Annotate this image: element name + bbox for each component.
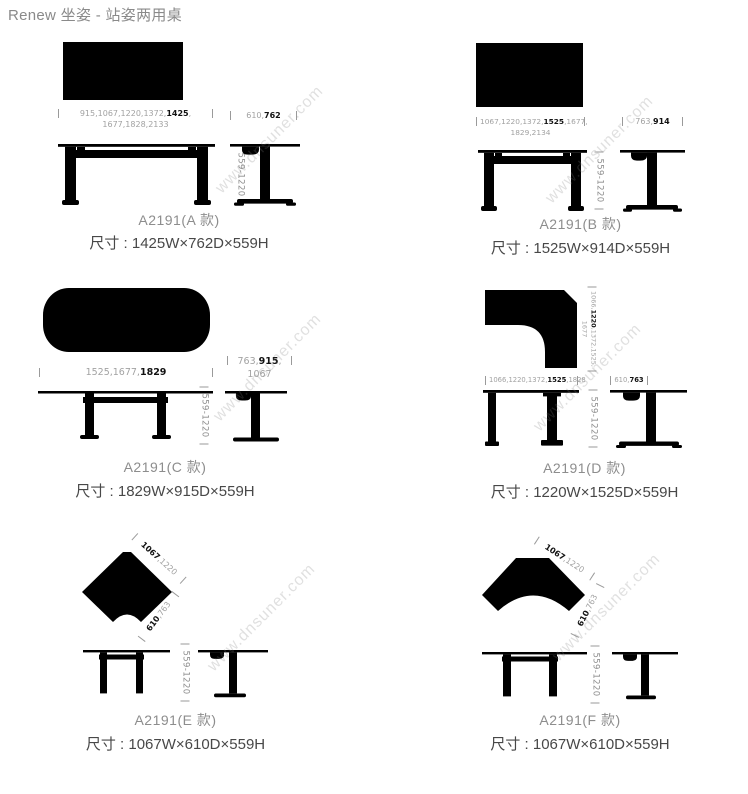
dim-tick: [181, 701, 190, 702]
width-dimension-line: 1066,1220,1372,1525,1828: [485, 375, 578, 386]
dim-pre: 610,: [614, 376, 629, 384]
dim-line2: 1677,1828,2133: [62, 119, 209, 130]
product-panel-f: 1067,1220 610,763 559-1220 A2191(F 款) 尺寸…: [420, 533, 748, 773]
dim-tick: [39, 368, 40, 377]
model-label: A2191(D 款): [482, 458, 687, 478]
dim-tick: [227, 356, 228, 365]
page-title: Renew 坐姿 - 站姿两用桌: [8, 4, 182, 25]
dimension-summary: 尺寸 : 1425W×762D×559H: [58, 232, 300, 253]
model-label: A2191(C 款): [38, 457, 292, 477]
dim-line1: 1067,1220,1372,1525,1677,: [480, 116, 581, 127]
height-range-text: 559-1220: [590, 650, 601, 700]
height-range-text: 559-1220: [199, 391, 210, 441]
dim-tick: [591, 703, 600, 704]
model-label: A2191(A 款): [58, 210, 300, 230]
height-range-text: 559-1220: [588, 394, 599, 444]
dimension-summary: 尺寸 : 1067W×610D×559H: [83, 733, 268, 754]
dim-tick: [589, 390, 598, 391]
dim-tick: [200, 444, 209, 445]
dim-tick: [591, 646, 600, 647]
height-dimension-line: 559-1220: [180, 644, 191, 702]
width-dimension-line: 1067,1220,1372,1525,1677, 1829,2134: [476, 116, 585, 138]
dim-tick: [212, 109, 213, 118]
spec-sheet-page: Renew 坐姿 - 站姿两用桌 915,1067,1220,1372,1425…: [0, 0, 748, 794]
dim-tick: [610, 376, 611, 385]
desk-front-elevation: [38, 390, 213, 444]
dimension-text: 1525,1677,1829: [43, 367, 209, 378]
dim-pre: 915,1067,1220,1372,: [80, 109, 167, 118]
dimension-summary: 尺寸 : 1067W×610D×559H: [482, 733, 678, 754]
dim-pre: 1525,1677,: [86, 367, 140, 378]
dimension-summary: 尺寸 : 1525W×914D×559H: [476, 237, 685, 258]
desk-front-elevation: [83, 650, 170, 698]
width-dimension-line: 915,1067,1220,1372,1425, 1677,1828,2133: [58, 108, 213, 130]
desk-front-elevation: [482, 652, 587, 700]
product-panel-e: 1067,1220 610,763 559-1220 A2191(E 款) 尺寸…: [40, 533, 370, 773]
dimension-text: 1066,1220,1372,1525, 1677: [580, 291, 598, 368]
desk-front-elevation: [58, 144, 215, 208]
dim-tick: [589, 447, 598, 448]
dim-bold: 1425: [166, 109, 188, 118]
dimension-summary: 尺寸 : 1220W×1525D×559H: [482, 481, 687, 502]
height-dimension-line: 559-1220: [588, 390, 599, 448]
product-panel-a: 915,1067,1220,1372,1425, 1677,1828,2133 …: [40, 38, 380, 250]
dimension-text: 1066,1220,1372,1525,1828: [489, 375, 574, 386]
desk-side-elevation: [620, 150, 685, 214]
dim-tick: [647, 376, 648, 385]
dim-tick: [584, 117, 585, 126]
dim-tick: [58, 109, 59, 118]
dim-tick: [212, 368, 213, 377]
dim-bold: 914: [653, 117, 670, 126]
desk-topview-rectangle: [476, 43, 583, 107]
dim-post: ,: [189, 109, 192, 118]
desk-side-elevation: [610, 390, 687, 450]
dimension-text: 915,1067,1220,1372,1425, 1677,1828,2133: [62, 108, 209, 130]
dim-pre: 763,: [237, 356, 258, 367]
height-dimension-line: 559-1220: [590, 646, 601, 704]
dim-tick: [595, 209, 604, 210]
dim-tick: [476, 117, 477, 126]
depth-dimension-line: 610,763: [610, 375, 648, 386]
desk-topview-l-shape: [485, 290, 577, 368]
desk-topview-rounded: [43, 288, 210, 352]
product-panel-b: 1067,1220,1372,1525,1677, 1829,2134 763,…: [420, 38, 748, 250]
dim-bold: 1525: [547, 376, 566, 384]
dim-line2: 1677: [580, 291, 589, 368]
dim-tick: [200, 387, 209, 388]
desk-topview-rectangle: [63, 42, 183, 100]
dim-tick: [485, 376, 486, 385]
model-label: A2191(F 款): [482, 710, 678, 730]
dim-pre: 1066,: [590, 291, 598, 310]
dim-bold: 763: [629, 376, 643, 384]
dim-bold: 1525: [543, 117, 564, 126]
dim-pre: 610,: [246, 111, 264, 120]
dimension-summary: 尺寸 : 1829W×915D×559H: [38, 480, 292, 501]
dim-pre: 1067,1220,1372,: [480, 117, 543, 126]
dim-line1: 915,1067,1220,1372,1425,: [62, 108, 209, 119]
height-dimension-line: 559-1220: [199, 387, 210, 445]
dim-tick: [230, 111, 231, 120]
width-dimension-line: 1525,1677,1829: [39, 367, 213, 378]
dim-tick: [682, 117, 683, 126]
model-label: A2191(E 款): [83, 710, 268, 730]
dimension-text: 1067,1220,1372,1525,1677, 1829,2134: [480, 116, 581, 138]
dim-tick: [589, 572, 595, 580]
dimension-text: 610,763: [614, 375, 644, 386]
height-range-text: 559-1220: [180, 648, 191, 698]
dim-bold: 1220: [590, 310, 598, 328]
dim-pre: 1066,1220,1372,: [489, 376, 547, 384]
desk-side-elevation: [612, 652, 678, 700]
dim-tick: [181, 644, 190, 645]
dim-tick: [588, 287, 597, 288]
dim-bold: 1829: [140, 367, 166, 378]
model-label: A2191(B 款): [476, 214, 685, 234]
dim-tick: [180, 577, 187, 584]
dim-line2: 1829,2134: [480, 127, 581, 138]
